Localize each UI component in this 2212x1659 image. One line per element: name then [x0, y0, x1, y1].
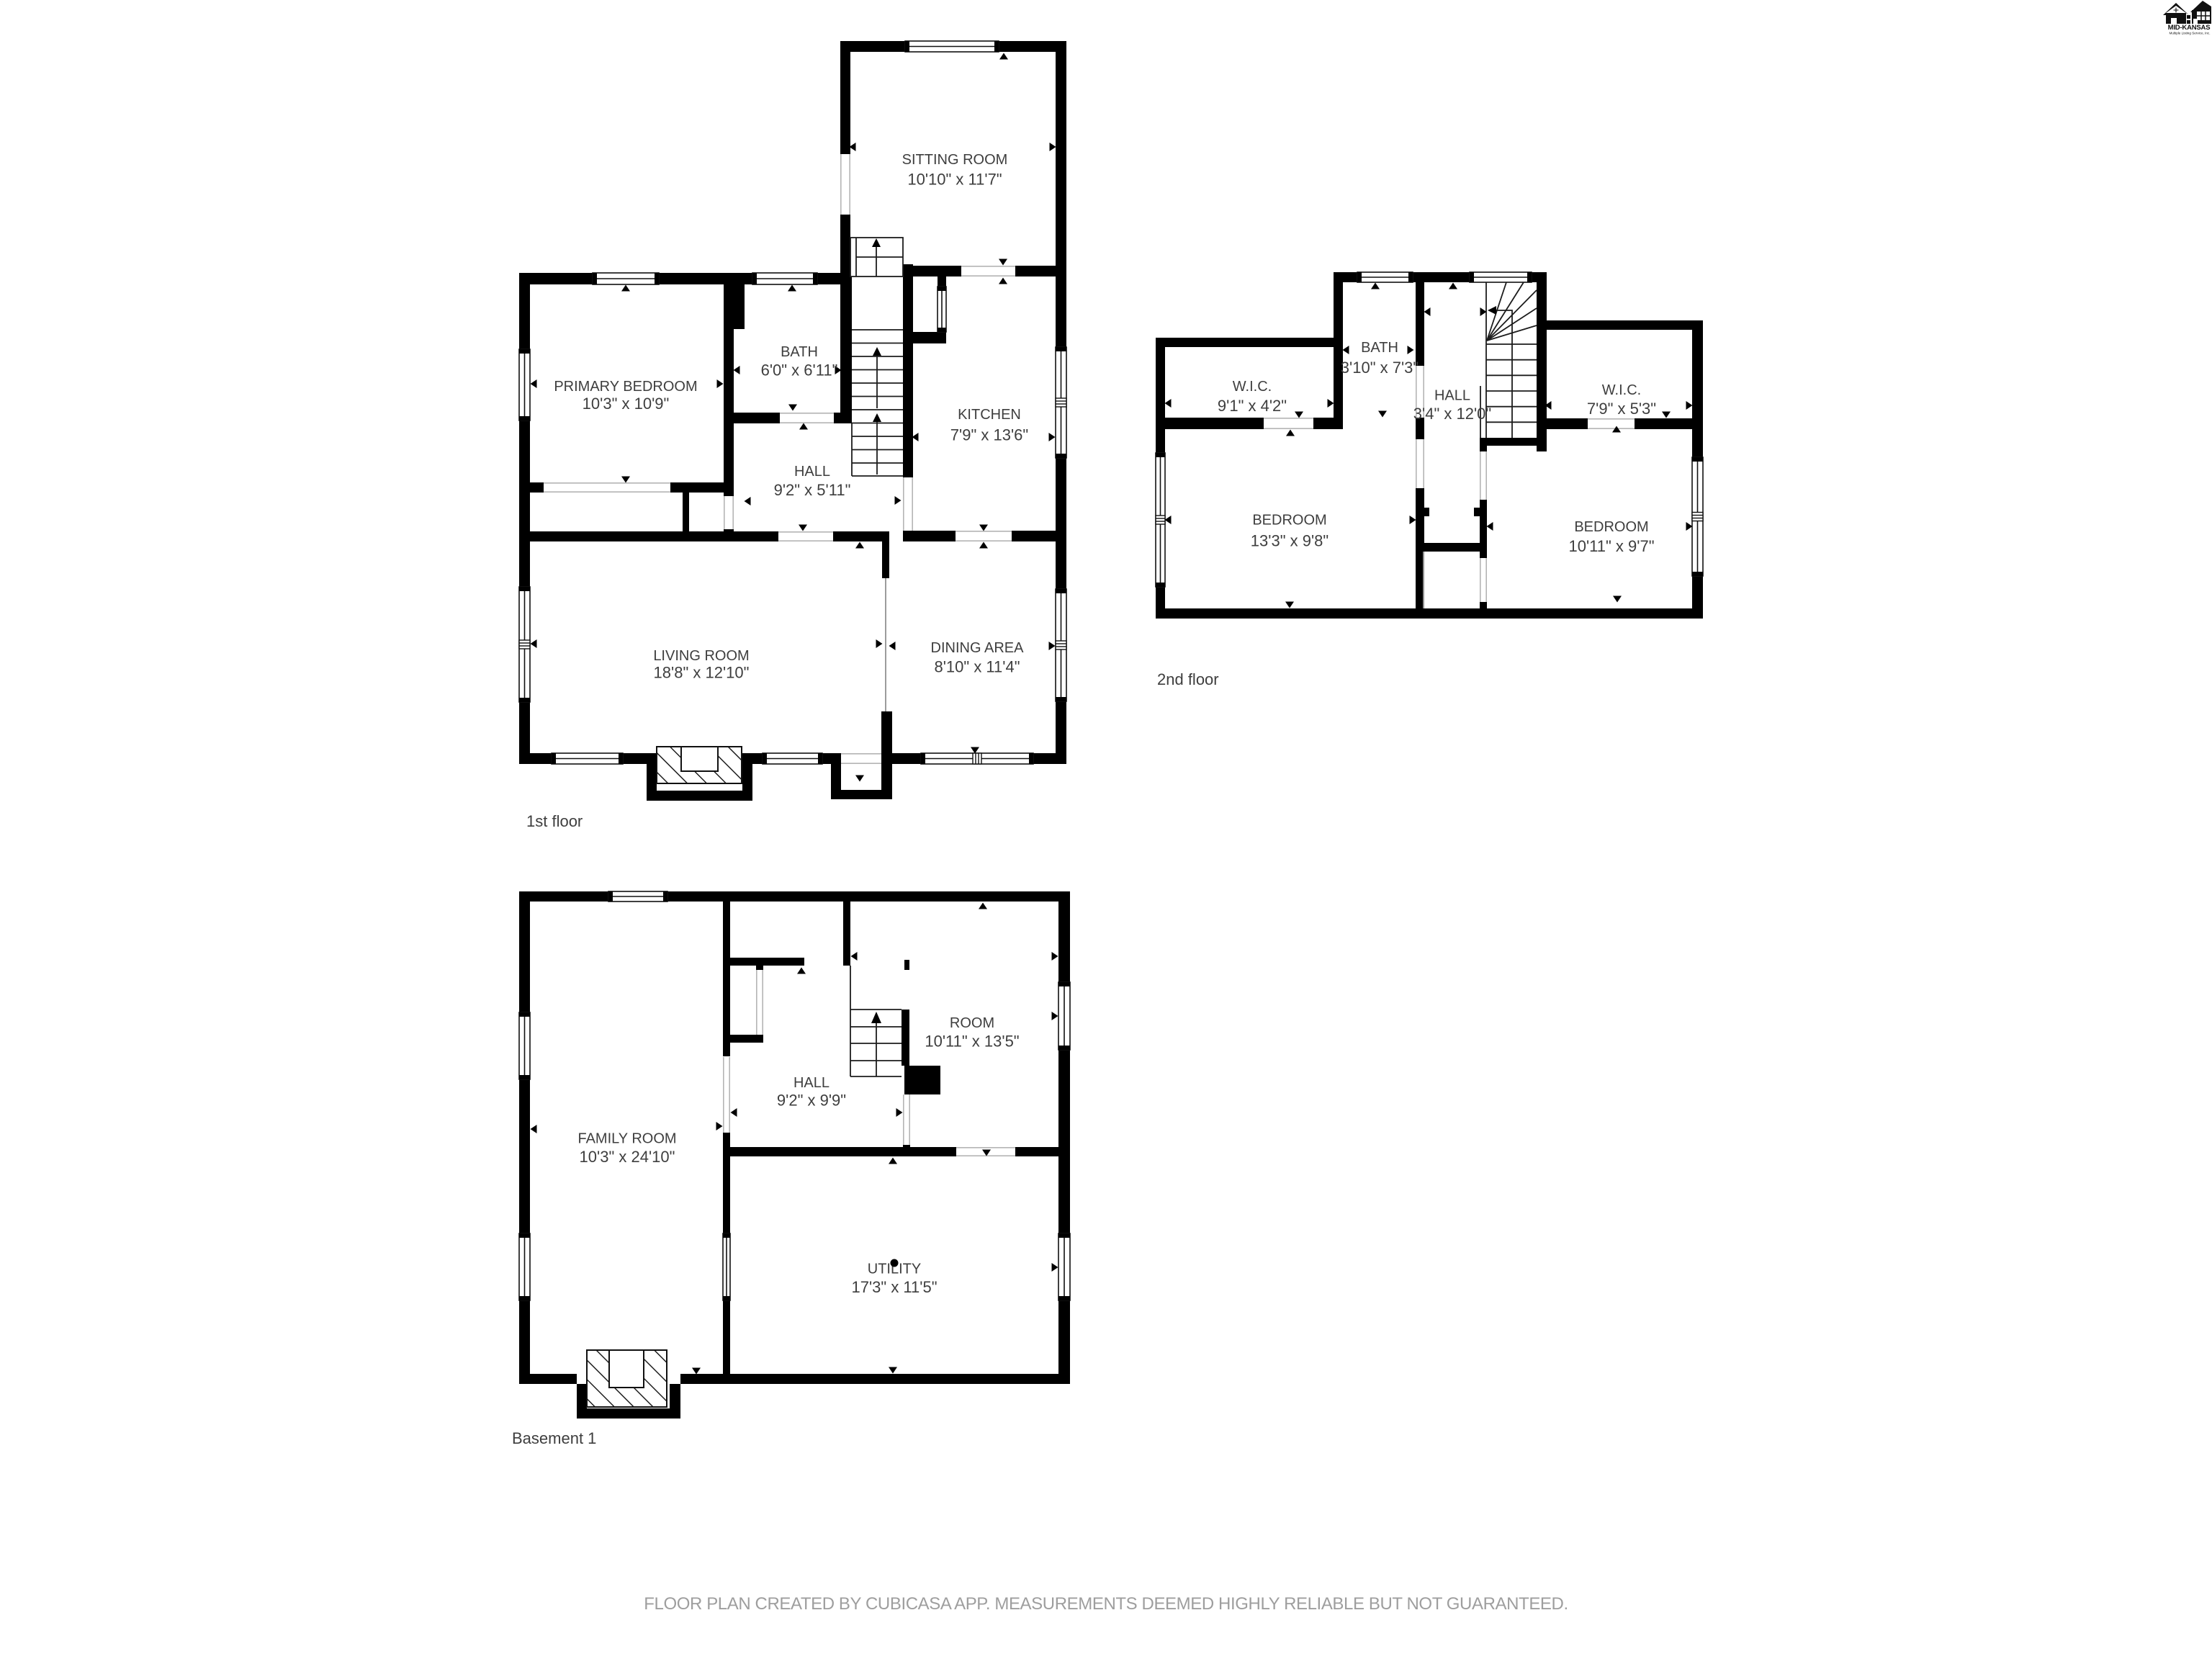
svg-text:18'8" x 12'10": 18'8" x 12'10": [654, 663, 750, 681]
svg-text:PRIMARY BEDROOM: PRIMARY BEDROOM: [554, 379, 697, 395]
svg-text:10'3" x 10'9": 10'3" x 10'9": [583, 395, 670, 413]
svg-text:LIVING ROOM: LIVING ROOM: [653, 648, 749, 664]
svg-text:BATH: BATH: [1361, 340, 1398, 356]
svg-text:SITTING ROOM: SITTING ROOM: [902, 152, 1008, 168]
svg-text:8'10" x 11'4": 8'10" x 11'4": [934, 658, 1020, 676]
svg-text:W.I.C.: W.I.C.: [1233, 379, 1272, 395]
svg-text:Basement 1: Basement 1: [512, 1429, 596, 1447]
svg-text:9'1" x 4'2": 9'1" x 4'2": [1218, 397, 1287, 415]
svg-text:DINING AREA: DINING AREA: [931, 640, 1025, 656]
svg-text:9'2" x 5'11": 9'2" x 5'11": [774, 481, 851, 499]
svg-text:KITCHEN: KITCHEN: [958, 407, 1021, 423]
svg-text:BATH: BATH: [781, 344, 818, 360]
svg-text:3'4" x 12'0": 3'4" x 12'0": [1413, 405, 1491, 423]
svg-text:6'0" x 6'11": 6'0" x 6'11": [761, 361, 838, 379]
svg-text:1st floor: 1st floor: [526, 812, 583, 830]
svg-text:ROOM: ROOM: [950, 1015, 994, 1031]
svg-text:MID-KANSAS: MID-KANSAS: [2168, 24, 2211, 32]
svg-text:10'3" x 24'10": 10'3" x 24'10": [580, 1148, 675, 1166]
svg-text:9'2" x 9'9": 9'2" x 9'9": [777, 1091, 846, 1109]
svg-text:7'9" x 5'3": 7'9" x 5'3": [1587, 400, 1656, 418]
svg-text:FLOOR PLAN CREATED BY CUBICASA: FLOOR PLAN CREATED BY CUBICASA APP. MEAS…: [644, 1594, 1568, 1614]
svg-text:HALL: HALL: [1434, 388, 1470, 404]
svg-text:FAMILY ROOM: FAMILY ROOM: [577, 1131, 676, 1147]
svg-text:W.I.C.: W.I.C.: [1602, 382, 1641, 398]
svg-text:HALL: HALL: [794, 464, 830, 480]
svg-text:BEDROOM: BEDROOM: [1574, 519, 1648, 535]
svg-text:BEDROOM: BEDROOM: [1252, 513, 1326, 529]
svg-text:3'10" x 7'3": 3'10" x 7'3": [1341, 359, 1419, 377]
svg-text:10'10" x 11'7": 10'10" x 11'7": [907, 171, 1002, 189]
svg-text:Multiple Listing Service, Inc.: Multiple Listing Service, Inc.: [2170, 32, 2211, 35]
svg-text:13'3" x 9'8": 13'3" x 9'8": [1251, 531, 1328, 549]
svg-text:17'3" x 11'5": 17'3" x 11'5": [851, 1278, 937, 1296]
svg-text:10'11" x 13'5": 10'11" x 13'5": [925, 1032, 1019, 1050]
svg-text:HALL: HALL: [793, 1075, 829, 1091]
svg-text:10'11" x 9'7": 10'11" x 9'7": [1568, 537, 1654, 555]
svg-text:2nd floor: 2nd floor: [1157, 670, 1219, 688]
svg-text:7'9" x 13'6": 7'9" x 13'6": [950, 426, 1028, 444]
